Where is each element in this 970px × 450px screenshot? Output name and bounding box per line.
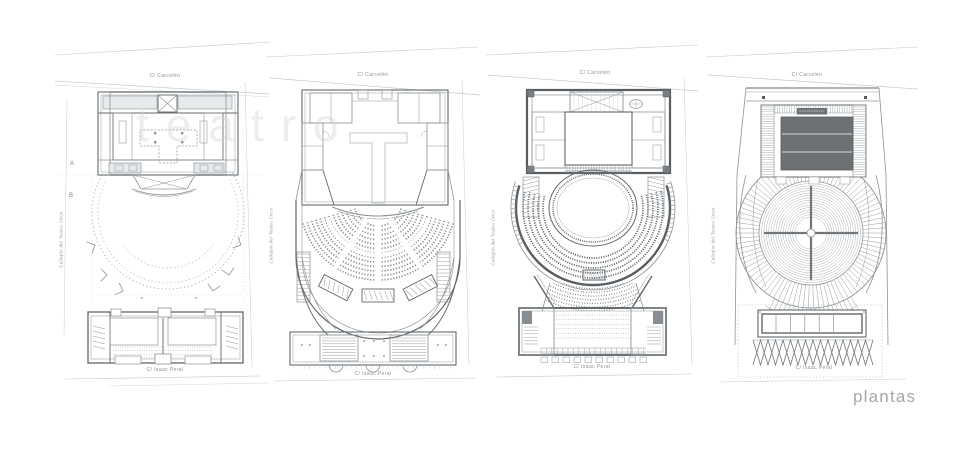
street-label-side-3: Callejón del Teatro Circo <box>491 190 496 286</box>
drawing-sheet: C/ Carcelén C/ Isaac Peral Callejón del … <box>0 0 970 450</box>
floor-plan-1: C/ Carcelén C/ Isaac Peral Callejón del … <box>55 5 270 395</box>
floor-plan-drawing-2 <box>266 5 481 395</box>
floor-plan-4: C/ Carcelén C/ Isaac Peral Callejón del … <box>706 5 921 395</box>
street-label-top-4: C/ Carcelén <box>762 72 852 78</box>
street-label-side-4: Callejón del Teatro Circo <box>711 188 716 284</box>
section-marker-a: A <box>70 161 74 167</box>
street-label-top-2: C/ Carcelén <box>328 72 418 78</box>
floor-plan-drawing-3 <box>486 5 701 395</box>
floor-plan-3: C/ Carcelén C/ Isaac Peral Callejón del … <box>486 5 701 395</box>
street-label-bottom-3: C/ Isaac Peral <box>547 364 637 370</box>
street-label-side-1: Callejón del Teatro Circo <box>59 192 64 288</box>
floor-plan-drawing-1 <box>55 5 270 395</box>
street-label-bottom-2: C/ Isaac Peral <box>328 371 418 377</box>
street-label-top-3: C/ Carcelén <box>550 70 640 76</box>
sheet-caption: plantas <box>853 387 963 407</box>
floor-plan-2: C/ Carcelén C/ Isaac Peral Callejón del … <box>266 5 481 395</box>
street-label-bottom-1: C/ Isaac Peral <box>120 367 210 373</box>
street-label-side-2: Callejón del Teatro Circo <box>269 188 274 284</box>
section-marker-b: B <box>69 193 73 199</box>
floor-plan-drawing-4 <box>706 5 921 395</box>
street-label-top-1: C/ Carcelén <box>120 73 210 79</box>
street-label-bottom-4: C/ Isaac Peral <box>769 365 859 371</box>
